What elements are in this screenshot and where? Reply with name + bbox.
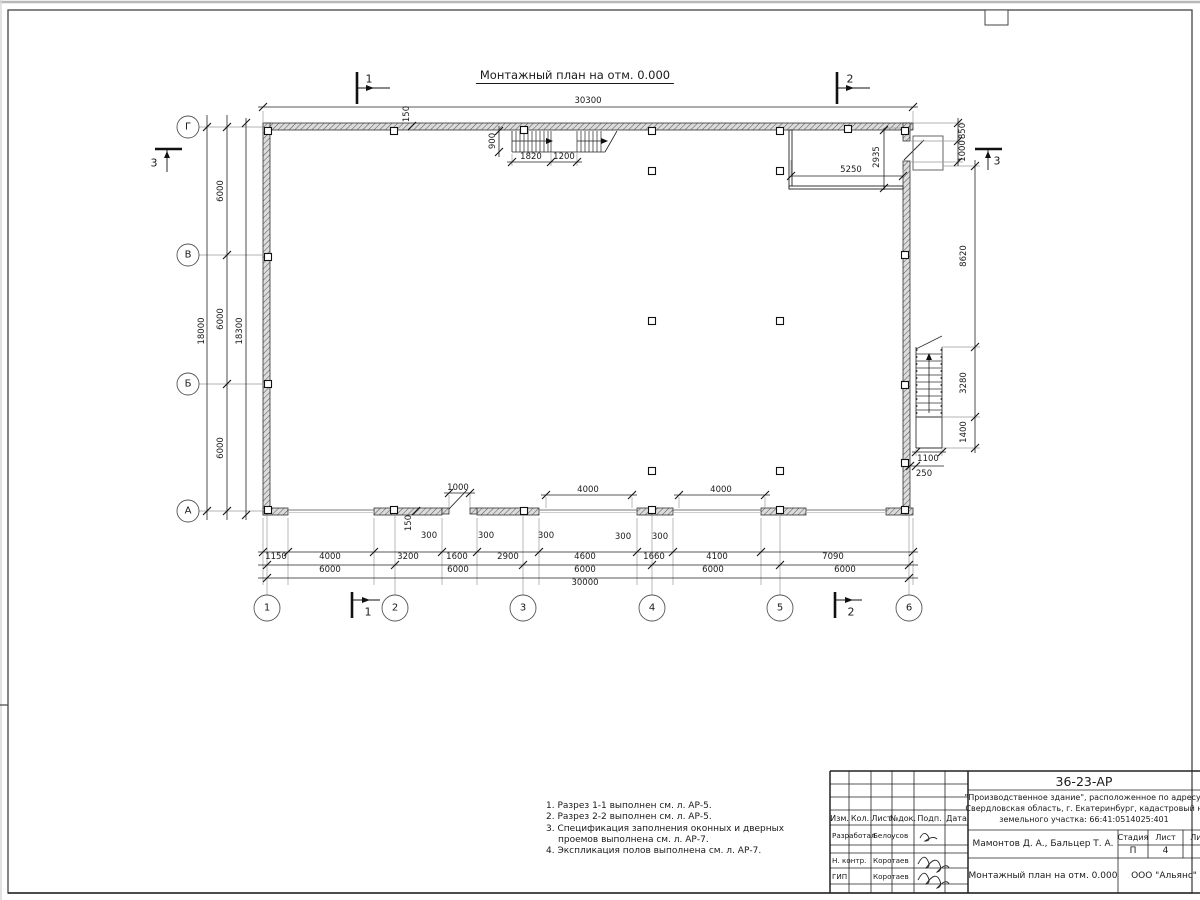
section-mark-label: 3 (151, 157, 158, 170)
name-ncontrol: Коротаев (873, 853, 913, 867)
dimension-label: 150 (404, 515, 414, 531)
dimension-label: 3280 (959, 372, 969, 394)
axis-col-label: 4 (649, 603, 655, 614)
axis-col-label: 3 (520, 603, 526, 614)
dimension-label: 6000 (447, 565, 469, 575)
section-mark-label: 1 (365, 606, 372, 619)
dimension-label: 1150 (265, 552, 287, 562)
note-line: 1. Разрез 1-1 выполнен см. л. АР-5. (546, 801, 712, 811)
dimension-label: 1000 (958, 140, 968, 162)
address-line-3: земельного участка: 66:41:0514025:401 (968, 813, 1200, 825)
stage-label: Стадия (1118, 830, 1148, 844)
dimension-label: 300 (652, 532, 668, 542)
dimension-label: 3200 (397, 552, 419, 562)
dimension-label: 6000 (216, 308, 226, 330)
dimension-label: 300 (421, 531, 437, 541)
dimension-label: 4000 (710, 485, 732, 495)
note-line: 3. Спецификация заполнения оконных и две… (546, 824, 784, 834)
col-header-list: Лист (871, 811, 892, 825)
role-ncontrol: Н. контр. (832, 853, 871, 867)
dimension-label: 1000 (447, 483, 469, 493)
dimension-label: 6000 (216, 437, 226, 459)
dimension-label: 1660 (643, 552, 665, 562)
dimension-label: 18300 (235, 317, 245, 344)
dimension-label: 300 (615, 532, 631, 542)
company-name: ООО "Альянс" (1118, 858, 1200, 893)
dimension-label: 1600 (446, 552, 468, 562)
axis-col-label: 5 (777, 603, 783, 614)
section-mark-label: 2 (847, 73, 854, 86)
col-header-podp: Подп. (914, 811, 945, 825)
dimension-label: 6000 (319, 565, 341, 575)
dimension-label: 4000 (577, 485, 599, 495)
dimension-label: 4100 (706, 552, 728, 562)
col-header-kol: Кол. (849, 811, 871, 825)
col-header-izm: Изм. (830, 811, 849, 825)
note-line: проемов выполнена см. л. АР-7. (558, 835, 709, 845)
axis-row-label: Б (185, 379, 192, 390)
dimension-label: 8620 (959, 245, 969, 267)
dimension-label: 6000 (574, 565, 596, 575)
role-developed: Разработал (832, 828, 871, 842)
note-line: 2. Разрез 2-2 выполнен см. л. АР-5. (546, 812, 712, 822)
axis-col-label: 2 (392, 603, 398, 614)
col-header-ndok: №док. (892, 811, 914, 825)
dimension-label: 30300 (574, 96, 601, 106)
plan-linework (0, 0, 1200, 900)
axis-row-label: Г (185, 122, 191, 133)
dimension-label: 6000 (216, 180, 226, 202)
axis-row-label: А (185, 506, 192, 517)
dimension-label: 6000 (702, 565, 724, 575)
dimension-label: 300 (538, 531, 554, 541)
plan-title: Монтажный план на отм. 0.000 (476, 68, 674, 84)
drawing-title: Монтажный план на отм. 0.000 (968, 858, 1118, 893)
axis-col-label: 6 (906, 603, 912, 614)
dimension-label: 30000 (571, 578, 598, 588)
dimension-label: 300 (478, 531, 494, 541)
stage-value: П (1118, 844, 1148, 858)
section-mark-label: 2 (848, 606, 855, 619)
generated-linework (0, 0, 1200, 900)
axis-col-label: 1 (264, 603, 270, 614)
dimension-label: 1400 (959, 421, 969, 443)
sheet-value: 4 (1148, 844, 1183, 858)
authors: Мамонтов Д. А., Бальцер Т. А. (968, 830, 1118, 858)
sheets-label: Лис (1183, 830, 1200, 844)
dimension-label: 900 (488, 133, 498, 149)
dimension-label: 150 (402, 106, 412, 122)
dimension-label: 5250 (840, 165, 862, 175)
dimension-label: 2935 (872, 146, 882, 168)
dimension-label: 250 (916, 469, 932, 479)
col-header-data: Дата (945, 811, 968, 825)
dimension-label: 850 (958, 123, 968, 139)
dimension-label: 2900 (497, 552, 519, 562)
dimension-label: 1100 (917, 454, 939, 464)
axis-row-label: В (185, 250, 192, 261)
doc-code: 36-23-АР (968, 772, 1200, 790)
sheet-label: Лист (1148, 830, 1183, 844)
name-developed: Белоусов (873, 828, 913, 842)
role-gip: ГИП (832, 869, 871, 883)
dimension-label: 4600 (574, 552, 596, 562)
dimension-label: 1820 (520, 152, 542, 162)
note-line: 4. Экспликация полов выполнена см. л. АР… (546, 846, 761, 856)
dimension-label: 4000 (319, 552, 341, 562)
section-mark-label: 3 (994, 155, 1001, 168)
section-mark-label: 1 (366, 73, 373, 86)
dimension-label: 7090 (822, 552, 844, 562)
dimension-label: 18000 (197, 317, 207, 344)
dimension-label: 1200 (553, 152, 575, 162)
dimension-label: 6000 (834, 565, 856, 575)
name-gip: Коротаев (873, 869, 913, 883)
drawing-sheet: Монтажный план на отм. 0.000 36-23-АР "П… (0, 0, 1200, 900)
